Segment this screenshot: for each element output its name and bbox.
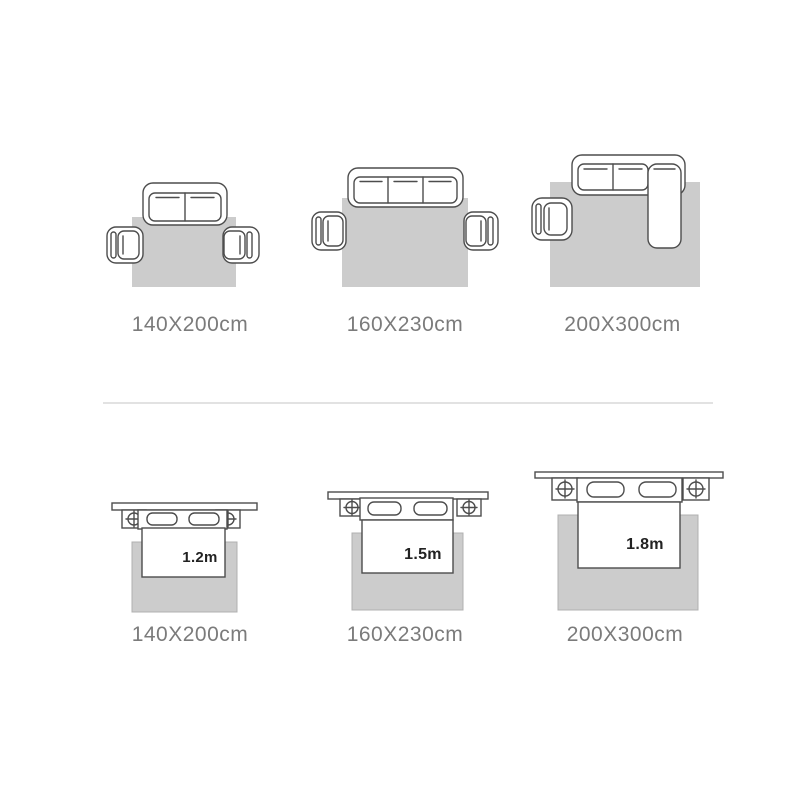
armchair-back-band xyxy=(316,217,321,245)
bed-layout-medium: 1.5m 160X230cm xyxy=(310,450,500,650)
rug-shape xyxy=(342,198,468,287)
armchair-cushion xyxy=(466,216,486,246)
chaise-lounge-shape xyxy=(648,164,681,248)
armchair-back-band xyxy=(111,232,116,258)
section-divider xyxy=(103,402,713,404)
armchair-cushion xyxy=(224,231,245,259)
armchair-back-band xyxy=(488,217,493,245)
armchair-cushion xyxy=(323,216,343,246)
size-label: 140X200cm xyxy=(100,310,280,340)
pillow-shape xyxy=(587,482,624,497)
pillow-shape xyxy=(189,513,219,525)
bed-nightstands-rug-icon: 1.2m xyxy=(100,460,280,620)
size-label: 200X300cm xyxy=(525,310,720,340)
pillow-shape xyxy=(639,482,676,497)
armchair-cushion xyxy=(544,203,567,235)
bed-width-label: 1.8m xyxy=(626,536,664,553)
bed-body-shape xyxy=(578,502,680,568)
headboard-shelf-shape xyxy=(535,472,723,478)
armchair-back-band xyxy=(536,204,541,234)
armchair-back-band xyxy=(247,232,252,258)
three-seat-sofa-two-armchairs-rug-icon xyxy=(310,140,500,310)
sofa-layout-small: 140X200cm xyxy=(100,140,280,340)
bed-nightstands-rug-icon: 1.5m xyxy=(310,450,500,620)
size-label: 200X300cm xyxy=(525,620,725,650)
bed-layout-large: 1.8m 200X300cm xyxy=(525,440,725,650)
bed-nightstands-rug-icon: 1.8m xyxy=(525,440,725,620)
headboard-shelf-shape xyxy=(112,503,257,510)
size-label: 160X230cm xyxy=(310,620,500,650)
pillow-shape xyxy=(368,502,401,515)
bed-width-label: 1.5m xyxy=(404,546,442,563)
pillow-shape xyxy=(147,513,177,525)
bed-width-label: 1.2m xyxy=(182,549,217,566)
rug-size-guide-image: 140X200cm 160X230cm xyxy=(0,0,800,800)
rug-shape xyxy=(132,217,236,287)
sofa-layout-medium: 160X230cm xyxy=(310,140,500,340)
armchair-cushion xyxy=(118,231,139,259)
size-label: 140X200cm xyxy=(100,620,280,650)
sofa-layout-large: 200X300cm xyxy=(525,140,720,340)
bed-layout-small: 1.2m 140X200cm xyxy=(100,460,280,650)
sectional-sofa-armchair-rug-icon xyxy=(525,140,720,310)
size-label: 160X230cm xyxy=(310,310,500,340)
loveseat-two-armchairs-rug-icon xyxy=(100,140,280,310)
pillow-shape xyxy=(414,502,447,515)
